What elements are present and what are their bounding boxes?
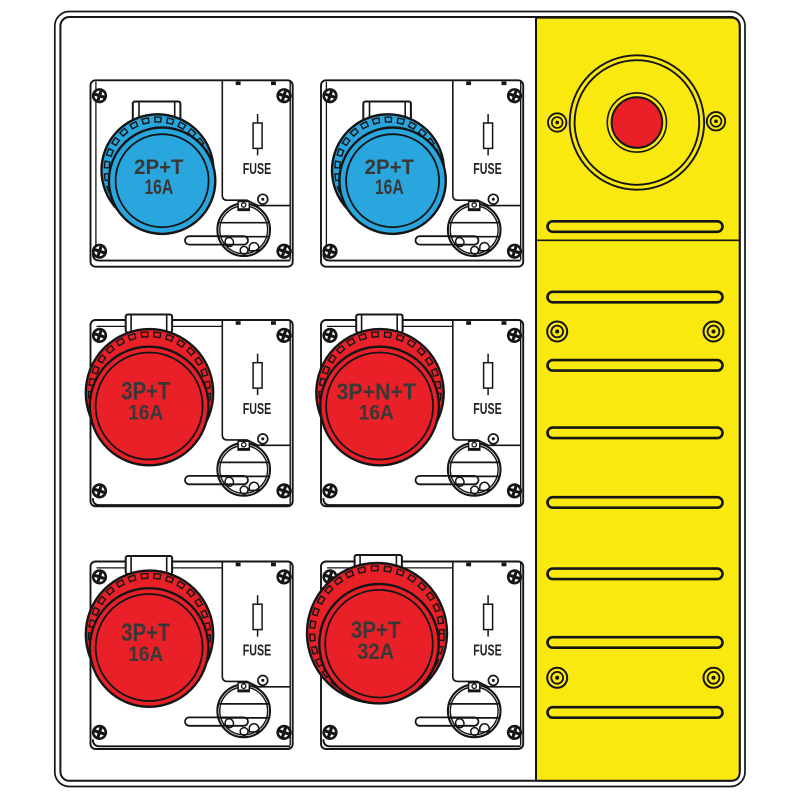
svg-text:16A: 16A [128, 643, 163, 666]
svg-text:16A: 16A [128, 402, 163, 425]
svg-text:FUSE: FUSE [243, 642, 271, 659]
svg-text:FUSE: FUSE [243, 161, 271, 178]
svg-text:16A: 16A [359, 402, 394, 425]
svg-text:FUSE: FUSE [473, 161, 501, 178]
svg-text:16A: 16A [144, 175, 173, 199]
svg-text:16A: 16A [375, 175, 404, 199]
svg-text:FUSE: FUSE [243, 401, 271, 418]
svg-text:FUSE: FUSE [473, 401, 501, 418]
svg-text:32A: 32A [357, 639, 394, 664]
svg-text:FUSE: FUSE [473, 642, 501, 659]
